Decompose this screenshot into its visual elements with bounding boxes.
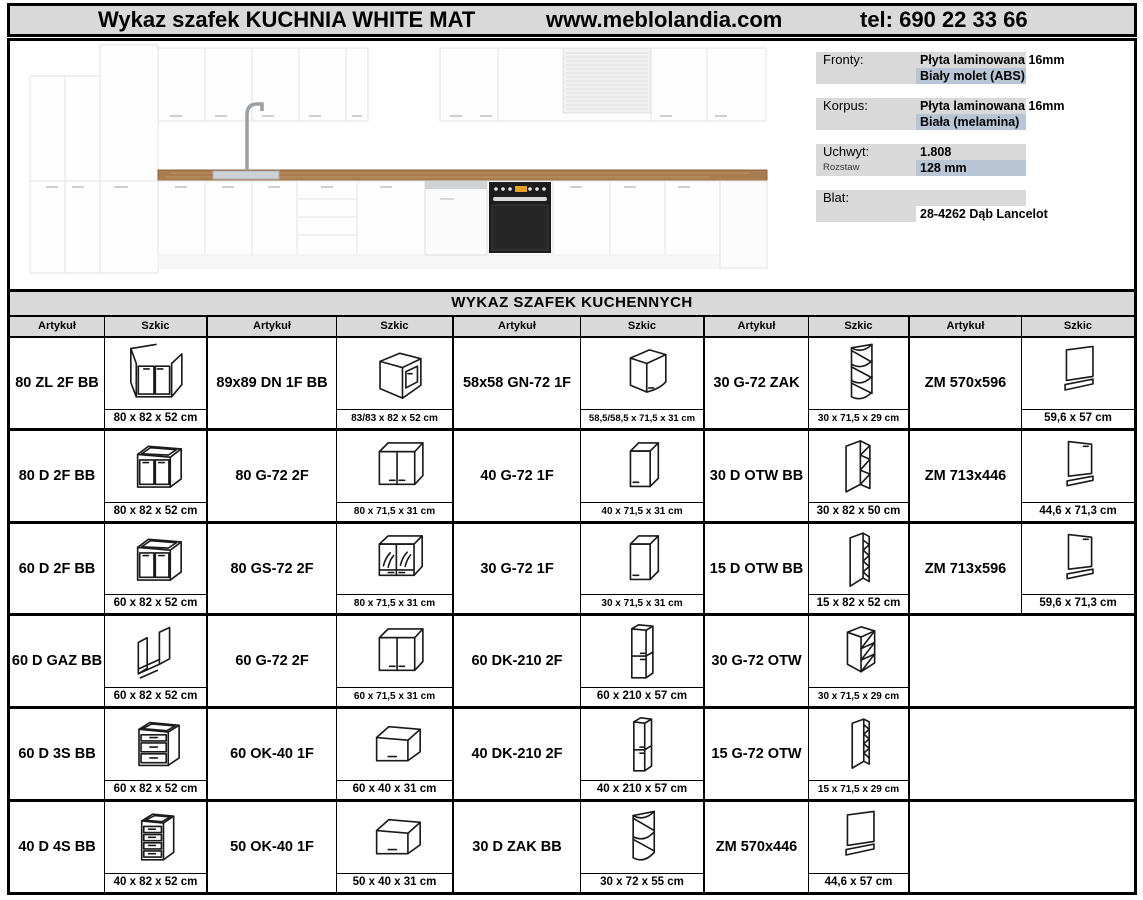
- article-code-cell: 40 D 4S BB: [10, 802, 105, 892]
- cargo-wall-15-icon: [809, 709, 908, 780]
- spec-label: Uchwyt:Rozstaw: [816, 144, 916, 176]
- table-title: WYKAZ SZAFEK KUCHENNYCH: [10, 292, 1134, 317]
- wall-glass-2door-icon: [337, 524, 452, 595]
- drawer-base-3-icon: [105, 709, 206, 780]
- spec-value-line1: 1.808: [916, 144, 1026, 160]
- article-code-cell: 60 G-72 2F: [208, 616, 337, 706]
- empty-cell: [910, 616, 1134, 706]
- article-code: 80 GS-72 2F: [230, 561, 313, 577]
- spec-row: Uchwyt:Rozstaw1.808128 mm: [816, 144, 1116, 176]
- spec-label-text: Fronty:: [823, 52, 916, 68]
- wall-2door-icon: [337, 431, 452, 502]
- sketch-cell: 50 x 40 x 31 cm: [337, 802, 454, 892]
- sketch-cell: 40 x 71,5 x 31 cm: [581, 431, 705, 521]
- dimensions-label: 40 x 82 x 52 cm: [105, 873, 206, 892]
- article-code-cell: 30 G-72 OTW: [705, 616, 809, 706]
- article-code-cell: 60 DK-210 2F: [454, 616, 581, 706]
- article-code-cell: 50 OK-40 1F: [208, 802, 337, 892]
- article-code: 40 G-72 1F: [480, 468, 553, 484]
- spec-values: Płyta laminowana 16mmBiały molet (ABS): [916, 52, 1026, 84]
- dimensions-label: 80 x 82 x 52 cm: [105, 409, 206, 428]
- col-header-artykul: Artykuł: [910, 317, 1022, 336]
- article-code-cell: 40 DK-210 2F: [454, 709, 581, 799]
- sketch-cell: 60 x 82 x 52 cm: [105, 524, 208, 614]
- article-code: 60 D 2F BB: [19, 561, 96, 577]
- cabinet-table: WYKAZ SZAFEK KUCHENNYCH ArtykułSzkicArty…: [10, 289, 1134, 892]
- sketch-cell: 60 x 82 x 52 cm: [105, 616, 208, 706]
- sketch-cell: 40 x 82 x 52 cm: [105, 802, 208, 892]
- table-row: 80 D 2F BB80 x 82 x 52 cm80 G-72 2F80 x …: [10, 431, 1134, 524]
- article-code: 30 G-72 ZAK: [713, 375, 799, 391]
- sketch-cell: 59,6 x 57 cm: [1022, 338, 1134, 428]
- article-code-cell: 40 G-72 1F: [454, 431, 581, 521]
- article-code: 40 DK-210 2F: [471, 746, 562, 762]
- corner-base-1door-icon: [337, 338, 452, 409]
- spec-value-line2: Biała (melamina): [916, 114, 1026, 130]
- spec-values: 28-4262 Dąb Lancelot: [916, 190, 1026, 222]
- dishwasher: [425, 181, 487, 255]
- article-code: 60 D GAZ BB: [12, 653, 102, 669]
- spec-value-line2: 128 mm: [916, 160, 1026, 176]
- sketch-cell: 30 x 72 x 55 cm: [581, 802, 705, 892]
- dimensions-label: 50 x 40 x 31 cm: [337, 873, 452, 892]
- oven-housing-icon: [105, 616, 206, 687]
- spec-label-text: Blat:: [823, 190, 916, 206]
- tall-2door-icon: [581, 616, 703, 687]
- spec-row: Fronty:Płyta laminowana 16mmBiały molet …: [816, 52, 1116, 84]
- dimensions-label: 60 x 210 x 57 cm: [581, 687, 703, 706]
- spec-sublabel-text: [823, 114, 916, 130]
- article-code-cell: 30 G-72 1F: [454, 524, 581, 614]
- dimensions-label: 30 x 82 x 50 cm: [809, 502, 908, 521]
- dimensions-label: 30 x 72 x 55 cm: [581, 873, 703, 892]
- article-code-cell: 89x89 DN 1F BB: [208, 338, 337, 428]
- phone-number: tel: 690 22 33 66: [860, 7, 1028, 33]
- flipup-wall-1door-icon: [337, 802, 452, 873]
- col-header-artykul: Artykuł: [208, 317, 337, 336]
- wall-2door-icon: [337, 616, 452, 687]
- spec-panel: Fronty:Płyta laminowana 16mmBiały molet …: [816, 52, 1116, 236]
- article-code-cell: 80 G-72 2F: [208, 431, 337, 521]
- dimensions-label: 40 x 210 x 57 cm: [581, 780, 703, 799]
- table-row: 60 D GAZ BB60 x 82 x 52 cm60 G-72 2F60 x…: [10, 616, 1134, 709]
- article-code: ZM 713x596: [925, 561, 1006, 577]
- article-code-cell: 15 D OTW BB: [705, 524, 809, 614]
- sketch-cell: 15 x 82 x 52 cm: [809, 524, 910, 614]
- drawer-base-4-icon: [105, 802, 206, 873]
- table-row: 80 ZL 2F BB80 x 82 x 52 cm89x89 DN 1F BB…: [10, 338, 1134, 431]
- article-code: 30 G-72 OTW: [711, 653, 801, 669]
- spec-row: Blat:28-4262 Dąb Lancelot: [816, 190, 1116, 222]
- cover-panel-icon: [809, 802, 908, 873]
- table-row: 60 D 3S BB60 x 82 x 52 cm60 OK-40 1F60 x…: [10, 709, 1134, 802]
- sketch-cell: 40 x 210 x 57 cm: [581, 709, 705, 799]
- article-code: 40 D 4S BB: [18, 839, 95, 855]
- spec-sublabel-text: Rozstaw: [823, 160, 916, 176]
- col-header-artykul: Artykuł: [454, 317, 581, 336]
- spec-label: Korpus:: [816, 98, 916, 130]
- col-header-szkic: Szkic: [337, 317, 454, 336]
- spec-label-text: Korpus:: [823, 98, 916, 114]
- article-code: 50 OK-40 1F: [230, 839, 314, 855]
- sketch-cell: 60 x 40 x 31 cm: [337, 709, 454, 799]
- article-code: 60 G-72 2F: [235, 653, 308, 669]
- table-row: 40 D 4S BB40 x 82 x 52 cm50 OK-40 1F50 x…: [10, 802, 1134, 892]
- sketch-cell: 60 x 82 x 52 cm: [105, 709, 208, 799]
- article-code: 60 D 3S BB: [18, 746, 95, 762]
- dimensions-label: 60 x 82 x 52 cm: [105, 687, 206, 706]
- sketch-cell: 30 x 82 x 50 cm: [809, 431, 910, 521]
- dimensions-label: 60 x 40 x 31 cm: [337, 780, 452, 799]
- sketch-cell: 58,5/58,5 x 71,5 x 31 cm: [581, 338, 705, 428]
- sink: [213, 171, 279, 179]
- col-header-artykul: Artykuł: [705, 317, 809, 336]
- article-code: 60 OK-40 1F: [230, 746, 314, 762]
- spec-value-line1: [916, 190, 1026, 206]
- article-code: 30 D ZAK BB: [472, 839, 561, 855]
- table-row: 60 D 2F BB60 x 82 x 52 cm80 GS-72 2F80 x…: [10, 524, 1134, 617]
- article-code-cell: 30 D OTW BB: [705, 431, 809, 521]
- website-text: www.meblolandia.com: [546, 7, 782, 33]
- article-code: 15 D OTW BB: [710, 561, 803, 577]
- doc-title: Wykaz szafek KUCHNIA WHITE MAT: [98, 7, 475, 33]
- article-code-cell: 30 D ZAK BB: [454, 802, 581, 892]
- dimensions-label: 80 x 71,5 x 31 cm: [337, 502, 452, 521]
- article-code: 89x89 DN 1F BB: [216, 375, 327, 391]
- wall-1door-icon: [581, 431, 703, 502]
- article-code: 60 DK-210 2F: [471, 653, 562, 669]
- article-code-cell: ZM 570x596: [910, 338, 1022, 428]
- base-2door-icon: [105, 431, 206, 502]
- dimensions-label: 15 x 82 x 52 cm: [809, 594, 908, 613]
- spec-label: Fronty:: [816, 52, 916, 84]
- spec-value-line1: Płyta laminowana 16mm: [916, 52, 1026, 68]
- sink-base-2door-icon: [105, 338, 206, 409]
- sketch-cell: 83/83 x 82 x 52 cm: [337, 338, 454, 428]
- col-header-szkic: Szkic: [1022, 317, 1134, 336]
- dimensions-label: 60 x 82 x 52 cm: [105, 780, 206, 799]
- col-header-szkic: Szkic: [809, 317, 910, 336]
- kitchen-visualization-image: [10, 41, 802, 287]
- spec-value-line2: 28-4262 Dąb Lancelot: [916, 206, 1026, 222]
- article-code-cell: 15 G-72 OTW: [705, 709, 809, 799]
- article-code-cell: 80 D 2F BB: [10, 431, 105, 521]
- spec-values: Płyta laminowana 16mmBiała (melamina): [916, 98, 1026, 130]
- document-header: Wykaz szafek KUCHNIA WHITE MAT www.meblo…: [7, 3, 1137, 37]
- article-code-cell: 60 D 3S BB: [10, 709, 105, 799]
- sketch-cell: 60 x 71,5 x 31 cm: [337, 616, 454, 706]
- spec-label: Blat:: [816, 190, 916, 222]
- dimensions-label: 59,6 x 71,3 cm: [1022, 594, 1134, 613]
- top-section: Fronty:Płyta laminowana 16mmBiały molet …: [10, 41, 1134, 289]
- dimensions-label: 44,6 x 57 cm: [809, 873, 908, 892]
- article-code-cell: 60 D GAZ BB: [10, 616, 105, 706]
- spec-value-line1: Płyta laminowana 16mm: [916, 98, 1026, 114]
- dimensions-label: 83/83 x 82 x 52 cm: [337, 409, 452, 428]
- cargo-base-15-icon: [809, 524, 908, 595]
- dimensions-label: 80 x 71,5 x 31 cm: [337, 594, 452, 613]
- article-code: 80 G-72 2F: [235, 468, 308, 484]
- article-code: 30 G-72 1F: [480, 561, 553, 577]
- dimensions-label: 58,5/58,5 x 71,5 x 31 cm: [581, 409, 703, 428]
- wall-open-shelf-3-icon: [809, 616, 908, 687]
- article-code-cell: 60 OK-40 1F: [208, 709, 337, 799]
- sketch-cell: 15 x 71,5 x 29 cm: [809, 709, 910, 799]
- dimensions-label: 15 x 71,5 x 29 cm: [809, 780, 908, 799]
- appliance-front-panel-icon: [1022, 431, 1134, 502]
- tall-2door-narrow-icon: [581, 709, 703, 780]
- article-code-cell: 80 ZL 2F BB: [10, 338, 105, 428]
- sketch-cell: 80 x 71,5 x 31 cm: [337, 431, 454, 521]
- article-code-cell: 60 D 2F BB: [10, 524, 105, 614]
- cover-panel-icon: [1022, 338, 1134, 409]
- spec-value-line2: Biały molet (ABS): [916, 68, 1026, 84]
- sketch-cell: 44,6 x 57 cm: [809, 802, 910, 892]
- sketch-cell: 80 x 82 x 52 cm: [105, 338, 208, 428]
- dimensions-label: 80 x 82 x 52 cm: [105, 502, 206, 521]
- dimensions-label: 44,6 x 71,3 cm: [1022, 502, 1134, 521]
- spec-row: Korpus:Płyta laminowana 16mmBiała (melam…: [816, 98, 1116, 130]
- article-code: ZM 570x446: [716, 839, 797, 855]
- dimensions-label: 59,6 x 57 cm: [1022, 409, 1134, 428]
- sketch-cell: 80 x 82 x 52 cm: [105, 431, 208, 521]
- corner-open-shelf-3-icon: [809, 338, 908, 409]
- spec-label-text: Uchwyt:: [823, 144, 916, 160]
- article-code-cell: ZM 713x596: [910, 524, 1022, 614]
- article-code-cell: 80 GS-72 2F: [208, 524, 337, 614]
- col-header-szkic: Szkic: [581, 317, 705, 336]
- dimensions-label: 60 x 71,5 x 31 cm: [337, 687, 452, 706]
- col-header-szkic: Szkic: [105, 317, 208, 336]
- dimensions-label: 30 x 71,5 x 31 cm: [581, 594, 703, 613]
- table-body: 80 ZL 2F BB80 x 82 x 52 cm89x89 DN 1F BB…: [10, 338, 1134, 892]
- sketch-cell: 60 x 210 x 57 cm: [581, 616, 705, 706]
- col-header-artykul: Artykuł: [10, 317, 105, 336]
- sketch-cell: 30 x 71,5 x 29 cm: [809, 338, 910, 428]
- article-code: ZM 713x446: [925, 468, 1006, 484]
- article-code-cell: ZM 713x446: [910, 431, 1022, 521]
- flipup-wall-1door-icon: [337, 709, 452, 780]
- sketch-cell: 30 x 71,5 x 29 cm: [809, 616, 910, 706]
- empty-cell: [910, 802, 1134, 892]
- appliance-front-panel-icon: [1022, 524, 1134, 595]
- dimensions-label: 30 x 71,5 x 29 cm: [809, 409, 908, 428]
- spec-values: 1.808128 mm: [916, 144, 1026, 176]
- spec-sublabel-text: [823, 206, 916, 222]
- article-code-cell: 30 G-72 ZAK: [705, 338, 809, 428]
- base-2door-icon: [105, 524, 206, 595]
- article-code: 15 G-72 OTW: [711, 746, 801, 762]
- article-code: 80 D 2F BB: [19, 468, 96, 484]
- article-code: 30 D OTW BB: [710, 468, 803, 484]
- article-code: 58x58 GN-72 1F: [463, 375, 571, 391]
- sketch-cell: 59,6 x 71,3 cm: [1022, 524, 1134, 614]
- sketch-cell: 44,6 x 71,3 cm: [1022, 431, 1134, 521]
- wall-1door-icon: [581, 524, 703, 595]
- corner-open-shelf-2-icon: [581, 802, 703, 873]
- sketch-cell: 30 x 71,5 x 31 cm: [581, 524, 705, 614]
- sketch-cell: 80 x 71,5 x 31 cm: [337, 524, 454, 614]
- article-code-cell: 58x58 GN-72 1F: [454, 338, 581, 428]
- empty-cell: [910, 709, 1134, 799]
- corner-wall-1door-icon: [581, 338, 703, 409]
- document-body: Fronty:Płyta laminowana 16mmBiały molet …: [7, 38, 1137, 895]
- article-code-cell: ZM 570x446: [705, 802, 809, 892]
- article-code: 80 ZL 2F BB: [15, 375, 99, 391]
- dimensions-label: 60 x 82 x 52 cm: [105, 594, 206, 613]
- article-code: ZM 570x596: [925, 375, 1006, 391]
- column-header-row: ArtykułSzkicArtykułSzkicArtykułSzkicArty…: [10, 317, 1134, 338]
- spec-sublabel-text: [823, 68, 916, 84]
- dimensions-label: 40 x 71,5 x 31 cm: [581, 502, 703, 521]
- base-open-shelf-3-icon: [809, 431, 908, 502]
- dimensions-label: 30 x 71,5 x 29 cm: [809, 687, 908, 706]
